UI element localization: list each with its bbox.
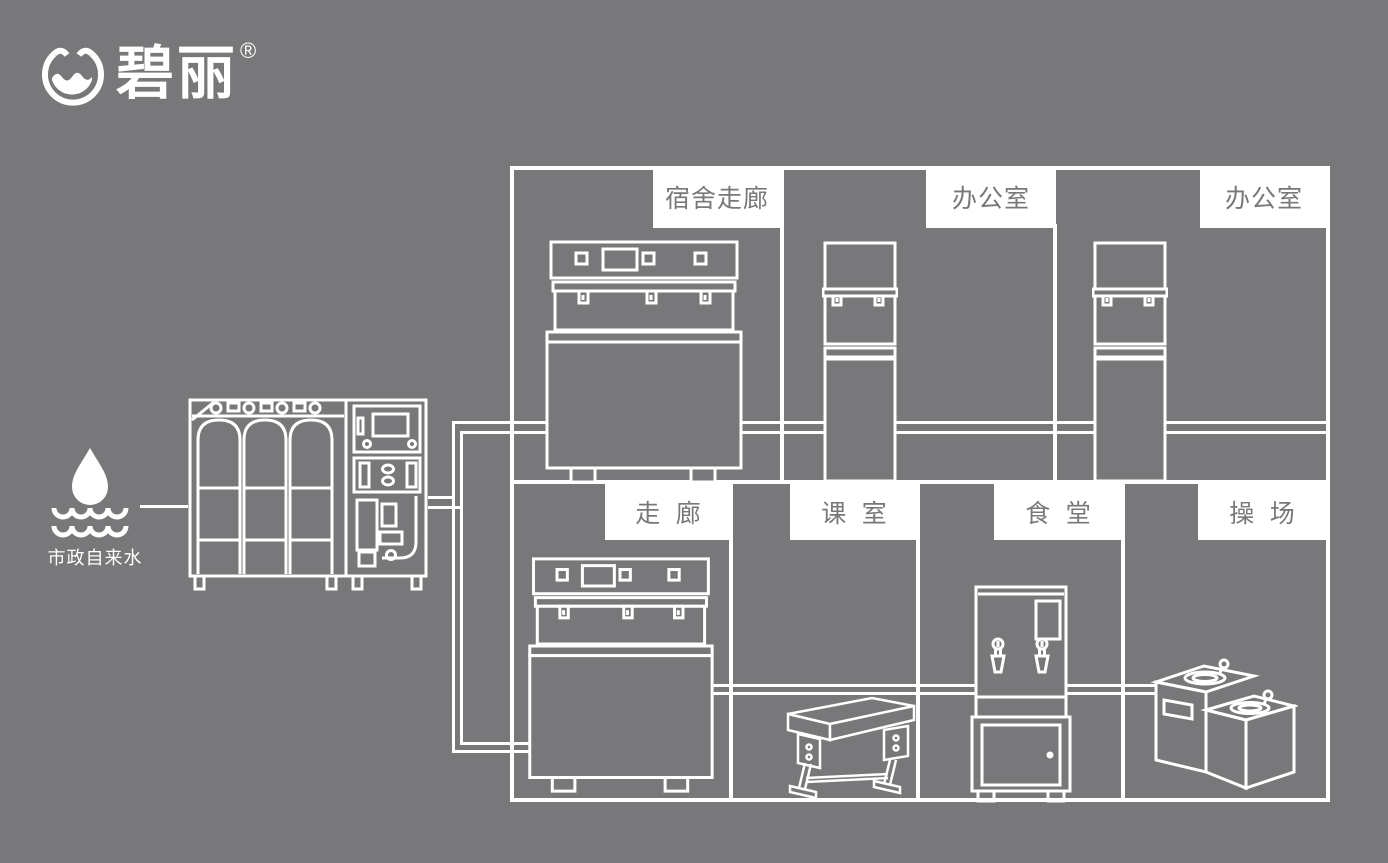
classroom-desk xyxy=(784,690,916,804)
water-drop-waves-icon xyxy=(50,446,134,542)
pipe-bottom-stub-a xyxy=(452,750,536,753)
pipe-riser-b xyxy=(460,431,463,745)
room-label-canteen: 食堂 xyxy=(994,484,1122,540)
divider-top-2 xyxy=(1053,224,1057,484)
water-bowl-icon xyxy=(40,42,106,113)
pipe-source-to-purifier xyxy=(140,505,188,508)
brand-logo: 碧丽 ® xyxy=(40,42,256,113)
room-label-dorm-corridor: 宿舍走廊 xyxy=(653,166,781,228)
room-label-corridor: 走廊 xyxy=(605,484,731,540)
office-dispenser-2 xyxy=(1092,240,1168,484)
pipe-bottom-stub-b xyxy=(460,742,536,745)
dorm-corridor-dispenser xyxy=(543,238,743,484)
room-label-office-2: 办公室 xyxy=(1200,166,1328,228)
pipe-lower-run-a xyxy=(710,684,1205,687)
office-dispenser-1 xyxy=(822,240,898,484)
pipe-riser-a xyxy=(452,421,455,753)
playground-fountain xyxy=(1150,648,1298,800)
building-right-wall xyxy=(1326,166,1330,802)
room-label-office-1: 办公室 xyxy=(926,166,1056,228)
room-label-classroom: 课室 xyxy=(790,484,918,540)
registered-mark: ® xyxy=(240,40,256,62)
building-left-wall xyxy=(510,166,514,802)
water-system-diagram: 碧丽 ® 市政自来水 宿舍走廊 办公室 办公室 走廊 课室 食堂 操场 xyxy=(0,0,1388,863)
corridor-dispenser xyxy=(526,555,714,793)
room-label-playground: 操场 xyxy=(1198,484,1326,540)
brand-name: 碧丽 xyxy=(116,42,238,106)
water-source-label: 市政自来水 xyxy=(30,544,160,570)
canteen-water-boiler xyxy=(970,583,1072,805)
water-purifier-unit xyxy=(186,390,434,596)
